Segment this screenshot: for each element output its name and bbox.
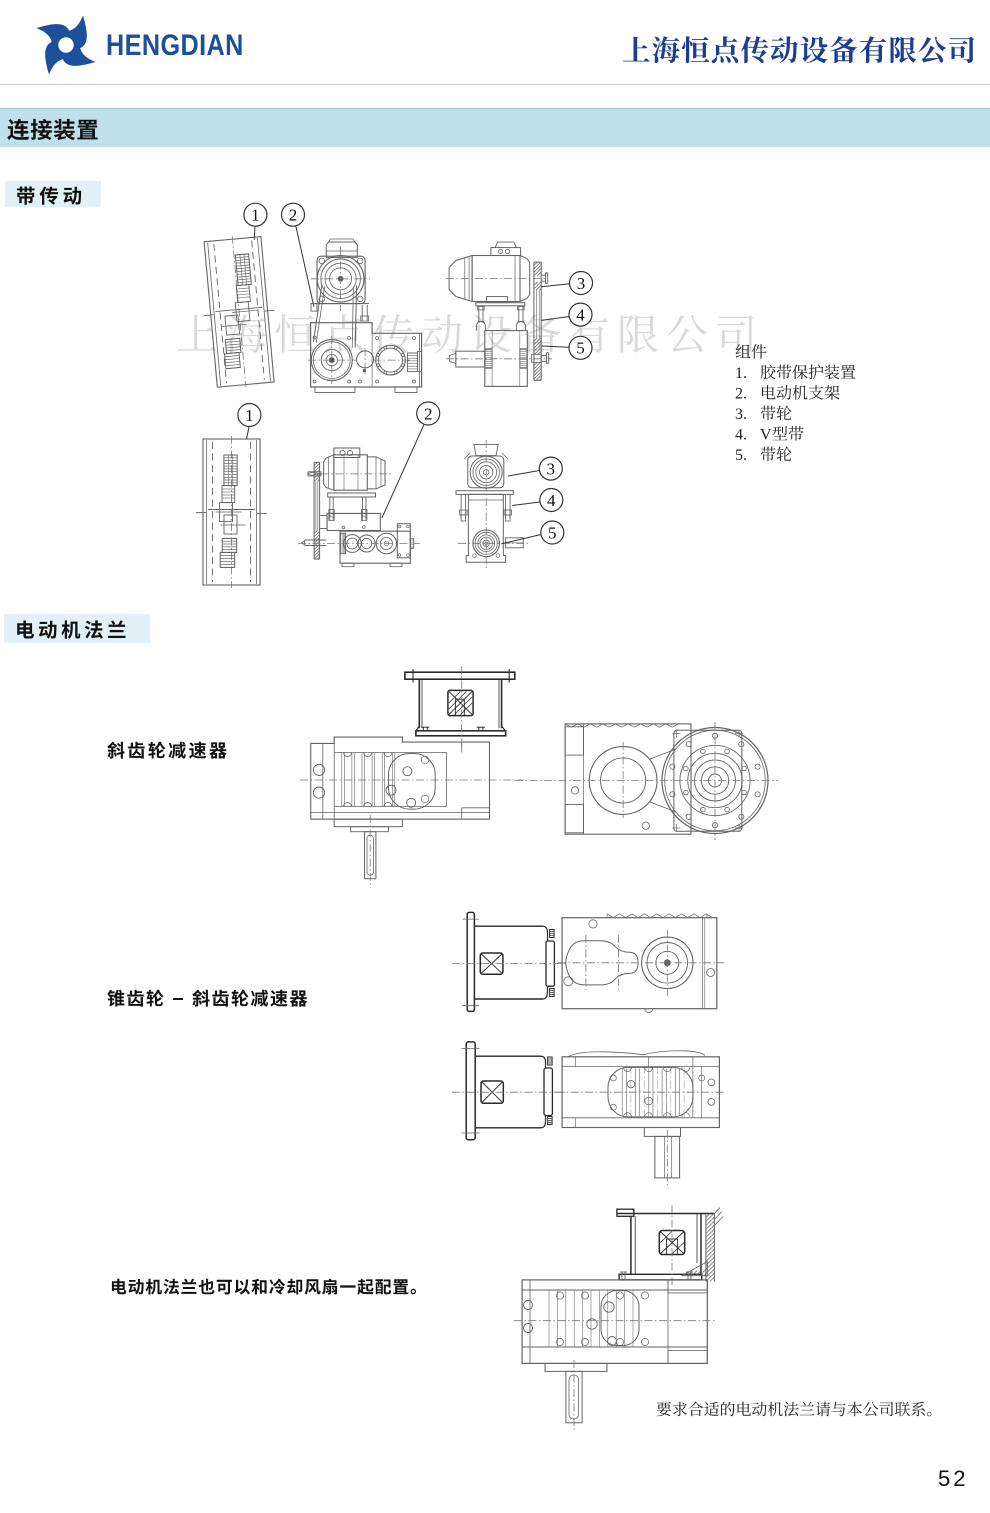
svg-text:4: 4: [576, 305, 585, 324]
svg-text:2.: 2.: [735, 386, 747, 403]
svg-text:1.: 1.: [735, 365, 747, 382]
svg-text:4: 4: [547, 491, 556, 510]
svg-text:3.: 3.: [735, 406, 747, 423]
svg-text:5: 5: [576, 339, 585, 358]
svg-text:3: 3: [577, 274, 586, 293]
svg-text:5: 5: [548, 523, 557, 542]
svg-text:V: V: [760, 427, 772, 444]
svg-text:2: 2: [289, 206, 298, 225]
svg-text:4.: 4.: [735, 427, 747, 444]
svg-text:5.: 5.: [735, 447, 747, 464]
svg-text:1: 1: [245, 406, 254, 425]
svg-text:3: 3: [547, 459, 556, 478]
svg-text:1: 1: [251, 206, 260, 225]
svg-text:2: 2: [424, 404, 433, 423]
